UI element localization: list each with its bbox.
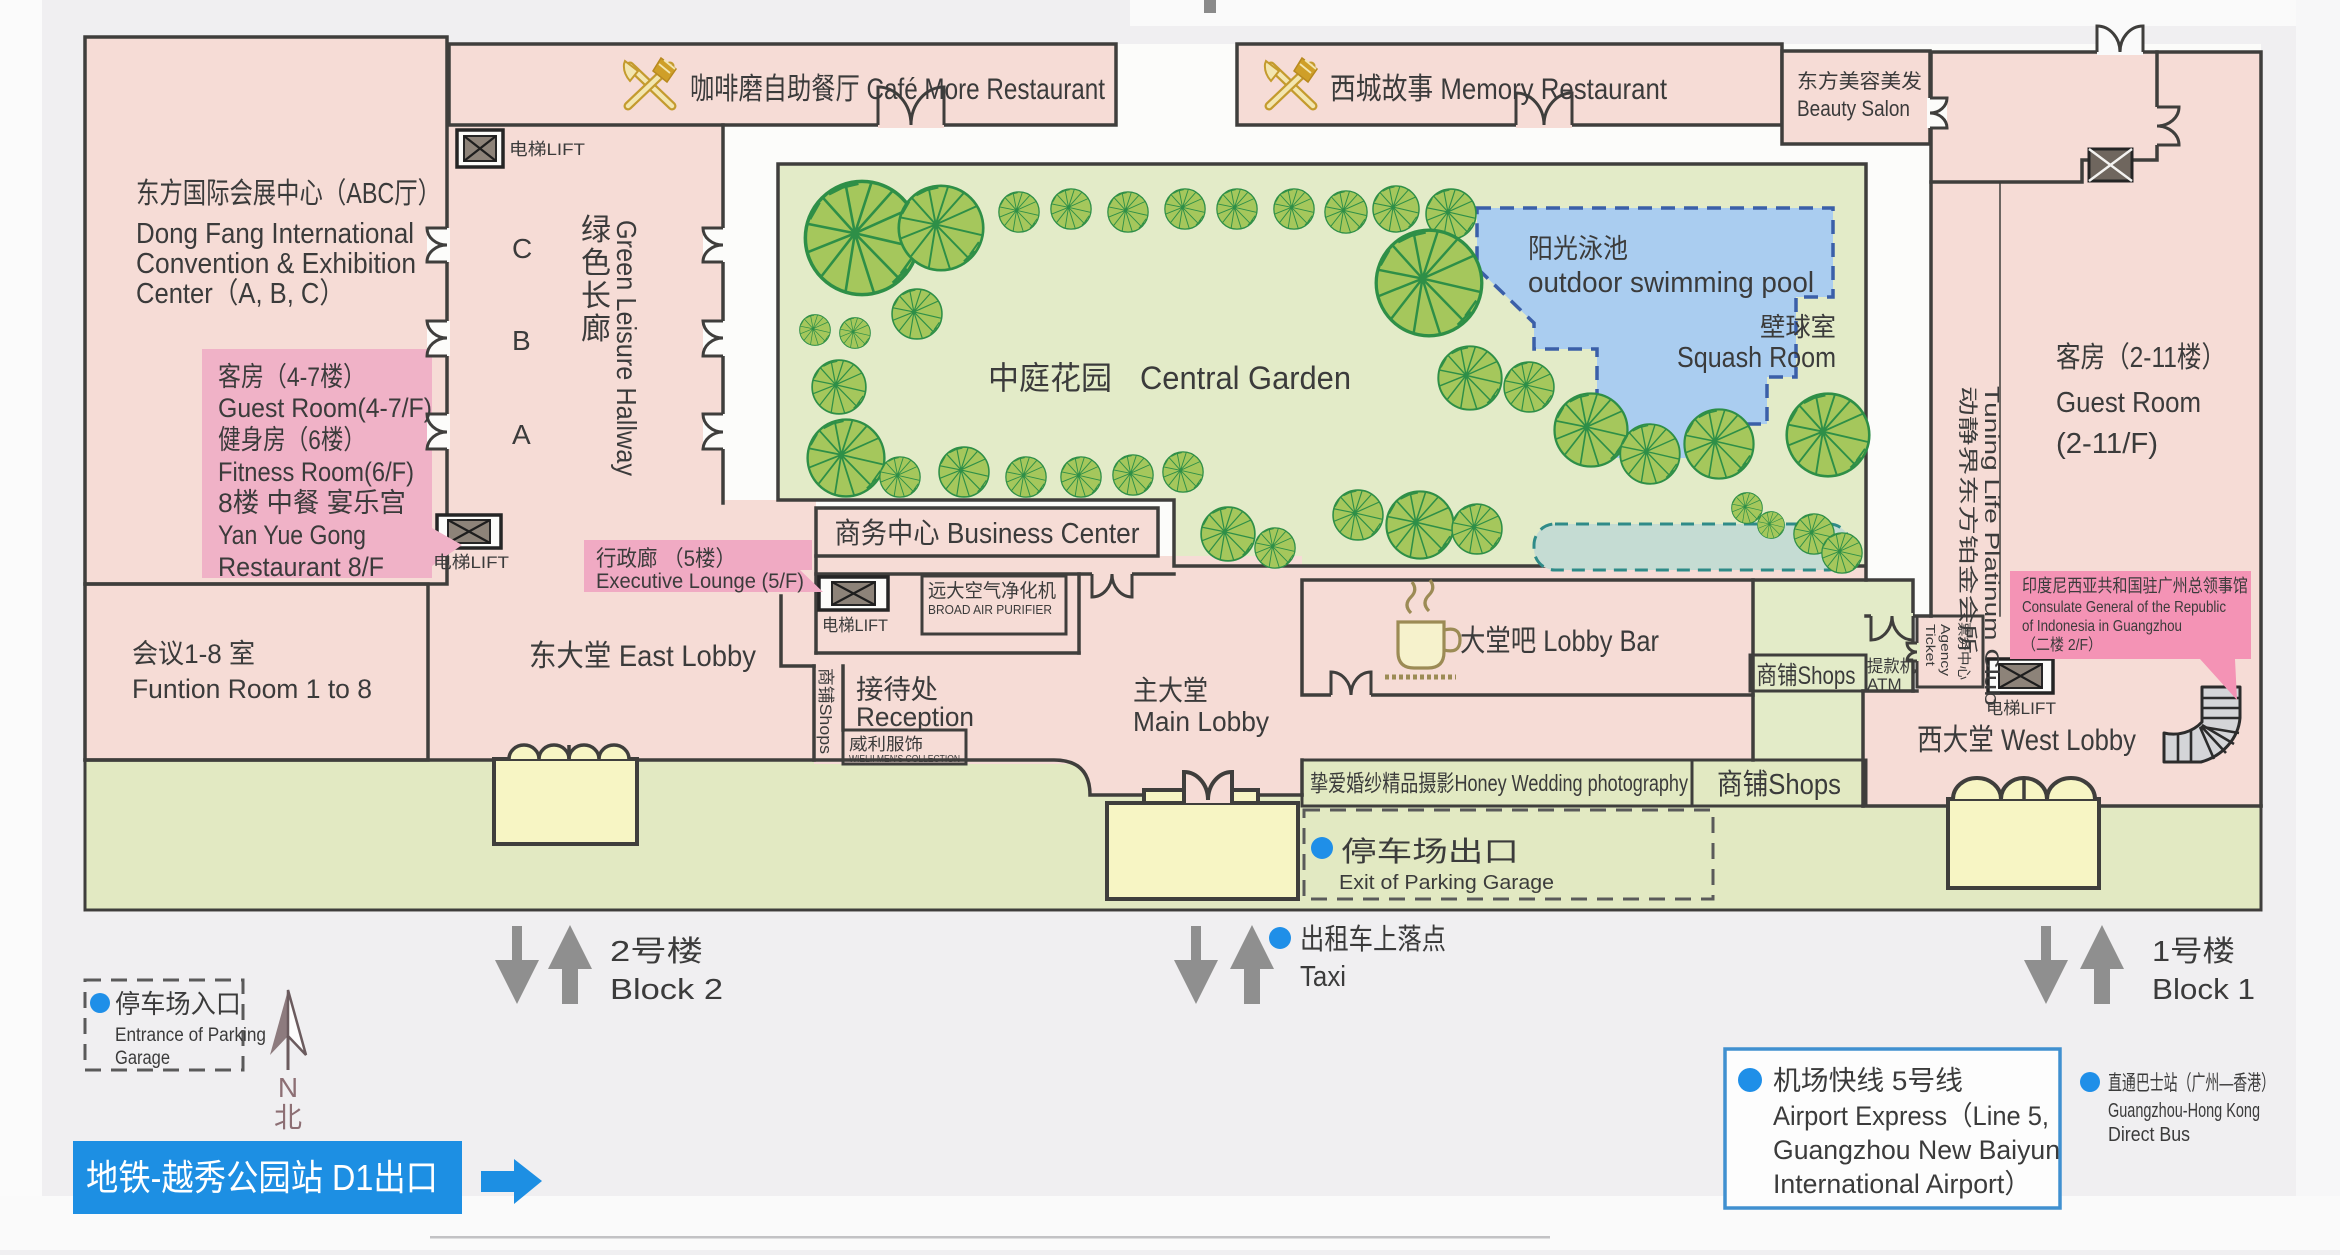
svg-text:咖啡磨自助餐厅 Café More Restaurant: 咖啡磨自助餐厅 Café More Restaurant [690,73,1106,106]
svg-text:商铺Shops: 商铺Shops [816,668,835,754]
svg-text:客房（4-7楼）: 客房（4-7楼） [218,362,366,392]
svg-text:北: 北 [274,1102,302,1133]
svg-text:of Indonesia in Guangzhou: of Indonesia in Guangzhou [2022,618,2182,635]
svg-text:会议1-8 室: 会议1-8 室 [132,639,255,669]
svg-text:电梯LIFT: 电梯LIFT [822,616,888,635]
svg-text:Block 2: Block 2 [610,974,723,1006]
svg-text:Ticket: Ticket [1923,624,1938,666]
svg-text:Agency: Agency [1938,624,1953,677]
svg-text:WIELII MEN'S COLLECTION: WIELII MEN'S COLLECTION [849,754,960,765]
svg-text:International Airport）: International Airport） [1773,1169,2031,1199]
svg-text:2号楼: 2号楼 [610,935,703,968]
svg-text:东大堂 East Lobby: 东大堂 East Lobby [529,640,756,673]
svg-text:Dong Fang International: Dong Fang International [136,218,414,250]
svg-text:Guest Room: Guest Room [2056,387,2201,419]
svg-text:BROAD AIR PURIFIER: BROAD AIR PURIFIER [928,602,1052,617]
svg-text:Executive Lounge (5/F): Executive Lounge (5/F) [596,570,804,593]
svg-text:远大空气净化机: 远大空气净化机 [928,580,1056,602]
svg-text:outdoor swimming pool: outdoor swimming pool [1528,267,1814,299]
svg-text:商务中心 Business Center: 商务中心 Business Center [835,517,1140,550]
svg-text:挚爱婚纱精品摄影Honey Wedding photogra: 挚爱婚纱精品摄影Honey Wedding photography [1310,770,1688,796]
svg-text:Main Lobby: Main Lobby [1133,706,1269,737]
svg-text:B: B [512,325,531,356]
svg-text:N: N [278,1072,298,1103]
svg-text:(2-11/F): (2-11/F) [2056,428,2158,460]
svg-text:商铺Shops: 商铺Shops [1717,768,1841,801]
svg-text:电梯LIFT: 电梯LIFT [433,553,509,572]
svg-text:地铁-越秀公园站 D1出口: 地铁-越秀公园站 D1出口 [86,1157,438,1198]
svg-text:东方国际会展中心（ABC厅）: 东方国际会展中心（ABC厅） [136,177,441,210]
svg-text:Center（A, B, C）: Center（A, B, C） [136,278,345,310]
svg-text:出租车上落点: 出租车上落点 [1300,923,1446,956]
svg-text:Reception: Reception [856,702,974,732]
svg-text:C: C [512,233,532,264]
svg-text:客房（2-11楼）: 客房（2-11楼） [2056,341,2226,374]
svg-text:Guangzhou New Baiyun: Guangzhou New Baiyun [1773,1135,2060,1165]
svg-text:电梯LIFT: 电梯LIFT [509,140,585,159]
svg-text:Fitness Room(6/F): Fitness Room(6/F) [218,457,414,487]
svg-text:Taxi: Taxi [1300,961,1346,993]
svg-text:西城故事 Memory Restaurant: 西城故事 Memory Restaurant [1330,73,1668,106]
svg-text:Direct Bus: Direct Bus [2108,1124,2190,1146]
svg-text:阳光泳池: 阳光泳池 [1528,234,1628,264]
svg-text:Funtion Room 1 to 8: Funtion Room 1 to 8 [132,674,372,704]
svg-text:Yan Yue Gong: Yan Yue Gong [218,520,366,550]
svg-text:行政廊 （5楼）: 行政廊 （5楼） [596,546,736,571]
svg-text:威利服饰: 威利服饰 [849,735,923,754]
svg-text:Exit of Parking Garage: Exit of Parking Garage [1339,872,1554,894]
svg-text:机场快线 5号线: 机场快线 5号线 [1773,1066,1963,1096]
svg-text:直通巴士站（广州—香港）: 直通巴士站（广州—香港） [2108,1072,2275,1095]
svg-text:8楼 中餐 宴乐宫: 8楼 中餐 宴乐宫 [218,488,406,518]
svg-text:Guest Room(4-7/F): Guest Room(4-7/F) [218,393,432,423]
svg-text:ATM: ATM [1867,675,1902,694]
svg-text:1号楼: 1号楼 [2152,935,2235,968]
svg-text:Squash Room: Squash Room [1677,342,1836,374]
svg-text:Guangzhou-Hong Kong: Guangzhou-Hong Kong [2108,1100,2260,1122]
svg-text:东方美容美发: 东方美容美发 [1797,70,1922,93]
svg-text:Beauty Salon: Beauty Salon [1797,96,1910,121]
svg-text:（二楼 2/F）: （二楼 2/F） [2022,636,2102,654]
svg-text:商铺Shops: 商铺Shops [1757,662,1856,690]
svg-text:印度尼西亚共和国驻广州总领事馆: 印度尼西亚共和国驻广州总领事馆 [2022,576,2248,596]
svg-text:接待处: 接待处 [856,675,938,705]
svg-text:Garage: Garage [115,1048,170,1069]
svg-text:Tuning Life Platinum Club: Tuning Life Platinum Club [1980,386,2002,706]
svg-text:Green Leisure Hallway: Green Leisure Hallway [611,220,642,476]
svg-text:西大堂 West Lobby: 西大堂 West Lobby [1917,724,2136,757]
svg-text:大堂吧 Lobby Bar: 大堂吧 Lobby Bar [1460,625,1659,658]
svg-text:主大堂: 主大堂 [1133,675,1208,706]
svg-text:动静界东方铂金会所: 动静界东方铂金会所 [1956,386,1979,654]
svg-text:停车场入口: 停车场入口 [115,989,241,1019]
svg-text:健身房（6楼）: 健身房（6楼） [218,425,366,455]
svg-text:Consulate General of the Repub: Consulate General of the Republic [2022,599,2226,616]
svg-text:提款机: 提款机 [1867,657,1916,676]
svg-text:A: A [512,419,531,450]
svg-text:壁球室: 壁球室 [1760,312,1836,342]
svg-text:Entrance of Parking: Entrance of Parking [115,1025,266,1046]
svg-text:绿色长廊: 绿色长廊 [581,214,611,346]
svg-text:中庭花园: 中庭花园 [988,360,1112,396]
svg-text:Block 1: Block 1 [2152,974,2255,1006]
svg-text:Airport Express（Line 5,: Airport Express（Line 5, [1773,1101,2049,1131]
svg-text:Restaurant 8/F: Restaurant 8/F [218,552,384,582]
svg-text:Convention & Exhibition: Convention & Exhibition [136,248,416,280]
svg-text:停车场出口: 停车场出口 [1341,836,1519,867]
svg-text:Central Garden: Central Garden [1140,360,1351,396]
